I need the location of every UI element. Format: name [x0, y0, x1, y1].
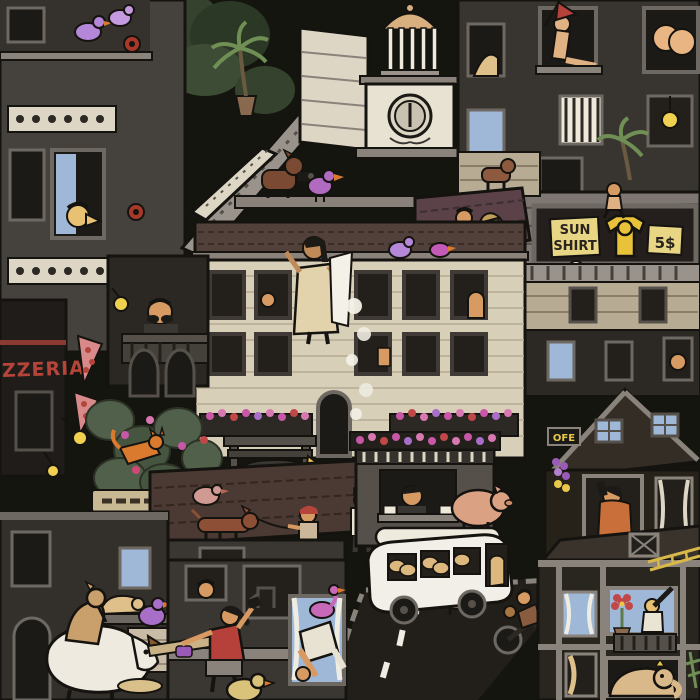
- window-figure: [664, 338, 692, 380]
- long-nose-man-window: [52, 150, 104, 238]
- white-brick-patch: [300, 28, 368, 150]
- window: [606, 342, 632, 380]
- lamp-icon: [662, 112, 678, 128]
- window: [8, 8, 44, 42]
- van-driver-window: [486, 544, 508, 586]
- bottom-left-building: [0, 512, 172, 700]
- city-illustration: SUN SHIRT 5$: [0, 0, 700, 700]
- window-onlooker: [468, 292, 484, 318]
- bottom-right-building: [538, 526, 700, 700]
- purple-object: [176, 646, 192, 657]
- window: [10, 150, 44, 220]
- elephant-window: [606, 658, 680, 696]
- peeking-man-window: [186, 566, 226, 600]
- cafe-sign-text: OFE: [553, 433, 575, 444]
- arched-doorway: [14, 618, 50, 700]
- tan-curtain-window: [566, 654, 596, 696]
- sun-shirt-sign-line1: SUN: [560, 223, 591, 238]
- monkey-passenger: [504, 606, 516, 618]
- entrance-door: [318, 392, 350, 456]
- window: [640, 288, 666, 322]
- window: [120, 548, 150, 588]
- bare-backside-window: [644, 8, 698, 72]
- sun-shirt-sign-line2: SHIRT: [553, 239, 597, 254]
- window: [12, 532, 50, 586]
- dotted-balcony-band: [8, 106, 116, 132]
- hay-pile: [118, 679, 162, 693]
- telescope-window: [608, 588, 676, 638]
- window: [548, 342, 574, 380]
- roof-hatch: [630, 534, 658, 556]
- red-wall-light: [124, 36, 140, 52]
- sun-shirt-billboard: SUN SHIRT 5$: [534, 206, 696, 264]
- striped-shutter-window: [560, 96, 602, 144]
- red-wall-light: [128, 204, 144, 220]
- central-building: [192, 222, 528, 458]
- price-sign: 5$: [655, 234, 676, 252]
- curtained-window: [562, 592, 596, 636]
- hanging-person: [536, 8, 602, 74]
- window-onlooker: [378, 348, 390, 366]
- right-mid-band: [520, 264, 700, 396]
- dotted-balcony-band: [8, 258, 116, 284]
- lamp-window: [648, 96, 692, 146]
- lamp-icon: [114, 297, 128, 311]
- cafe-sign: OFE: [548, 428, 580, 445]
- bottom-center-block: [148, 560, 346, 700]
- balcony: [614, 634, 676, 652]
- window: [16, 392, 52, 450]
- balcony-moustache-man: [108, 256, 208, 396]
- lamp-icon: [73, 431, 87, 445]
- window: [570, 288, 596, 322]
- illustration-stage: SUN SHIRT 5$: [0, 0, 700, 700]
- pizzeria-sign: ZZERIA: [2, 357, 86, 382]
- lamp-icon: [47, 465, 59, 477]
- window-onlooker: [261, 293, 275, 307]
